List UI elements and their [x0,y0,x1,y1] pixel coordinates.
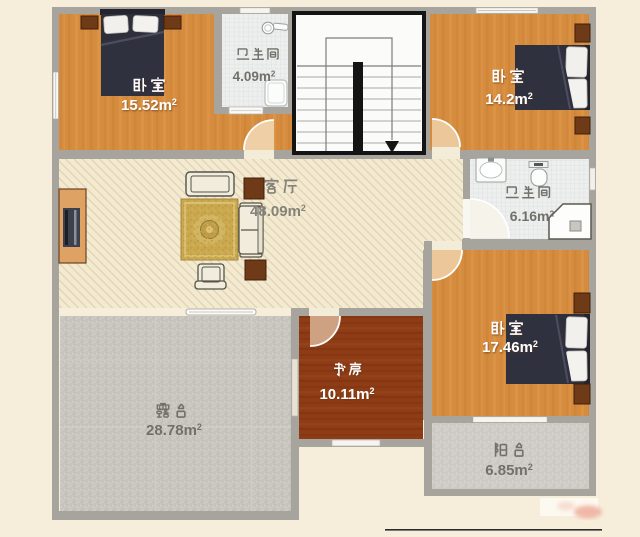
svg-text:6.16m2: 6.16m2 [510,208,555,224]
svg-text:17.46m2: 17.46m2 [482,339,538,356]
svg-text:48.09m2: 48.09m2 [250,203,306,220]
svg-text:28.78m2: 28.78m2 [146,422,202,439]
svg-text:15.52m2: 15.52m2 [121,97,177,114]
svg-text:6.85m2: 6.85m2 [485,462,533,479]
svg-text:4.09m2: 4.09m2 [233,69,276,84]
svg-text:14.2m2: 14.2m2 [485,91,533,108]
svg-text:10.11m2: 10.11m2 [319,386,374,403]
